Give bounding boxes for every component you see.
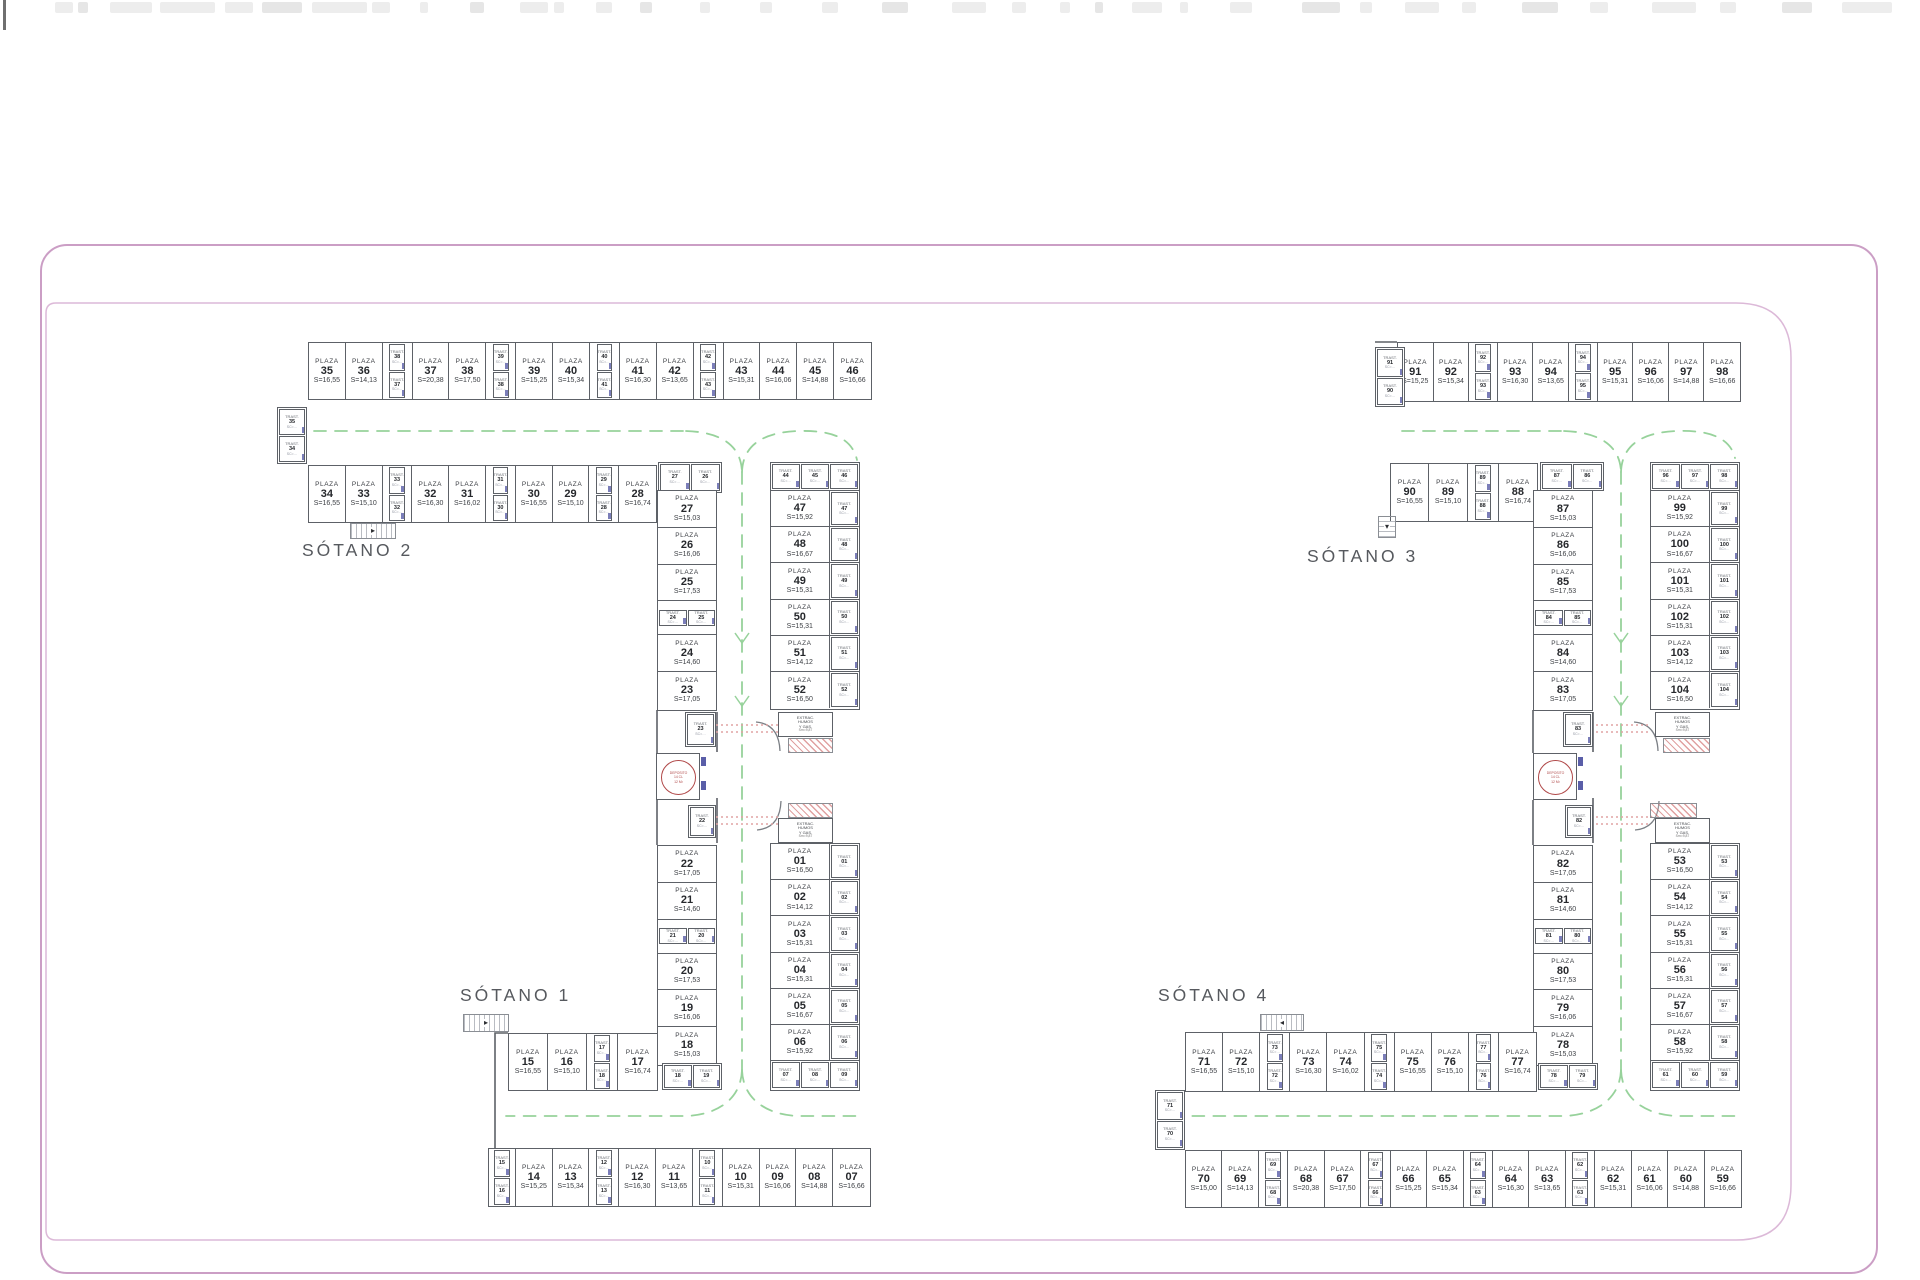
plaza-number: 73: [1302, 1056, 1314, 1068]
trast-area: SC=…: [497, 1195, 507, 1199]
plaza-number: 78: [1557, 1039, 1569, 1051]
east-row: PLAZA100S=16,67TRAST.100SC=…: [1651, 527, 1739, 563]
trast-18: TRAST.18SC=…: [664, 1065, 692, 1088]
plaza-word: PLAZA: [1551, 677, 1575, 684]
trast-area: SC=…: [1552, 480, 1562, 484]
trast-slot: TRAST.57SC=…: [1710, 989, 1739, 1024]
plaza-area: S=16,74: [624, 1068, 650, 1076]
trast-area: SC=…: [497, 1167, 507, 1171]
plaza-word: PLAZA: [1551, 850, 1575, 857]
trast-82: TRAST.82SC=…: [1567, 807, 1591, 836]
plaza-number: 55: [1674, 928, 1686, 940]
plaza-number: 92: [1445, 366, 1457, 378]
plaza-area: S=16,66: [1709, 378, 1735, 386]
plaza-94: PLAZA94S=13,65: [1533, 343, 1569, 401]
plaza-area: S=14,88: [1673, 378, 1699, 386]
plaza-60: PLAZA60S=14,88: [1668, 1151, 1704, 1207]
plaza-area: S=15,25: [521, 1183, 547, 1191]
plaza-area: S=16,74: [1504, 1068, 1530, 1076]
trast-area: SC=…: [1660, 1079, 1670, 1083]
trast-area: SC=…: [1719, 1046, 1729, 1050]
plaza-54: PLAZA54S=14,12: [1651, 880, 1710, 915]
plaza-number: 40: [565, 365, 577, 377]
plaza-19: PLAZA19S=16,06: [658, 990, 716, 1027]
trast-slot: TRAST.02SC=…: [830, 880, 859, 915]
plaza-72: PLAZA72S=15,10: [1223, 1033, 1260, 1091]
plaza-word: PLAZA: [1229, 1049, 1253, 1056]
trast-area: SC=…: [599, 511, 609, 515]
trast-area: SC=…: [696, 940, 706, 944]
trast-pair: TRAST.10SC=…TRAST.11SC=…: [693, 1149, 723, 1206]
entry-arrow-icon: ▸: [370, 527, 376, 535]
plaza-word: PLAZA: [352, 358, 376, 365]
entry-stairs: ▸: [350, 523, 396, 539]
trast-area: SC=…: [701, 1080, 711, 1084]
plaza-number: 56: [1674, 964, 1686, 976]
trast-pair: TRAST.64SC=…TRAST.63SC=…: [1464, 1151, 1494, 1207]
trast-area: SC=…: [1544, 621, 1554, 625]
plaza-area: S=15,10: [1437, 1068, 1463, 1076]
plaza-word: PLAZA: [1551, 640, 1575, 647]
trast-cap-row: TRAST.61SC=…TRAST.60SC=…TRAST.59SC=…: [1651, 1061, 1739, 1089]
plaza-area: S=15,31: [1667, 623, 1693, 631]
plaza-area: S=16,30: [1295, 1068, 1321, 1076]
trast-pair: TRAST.33SC=…TRAST.32SC=…: [383, 466, 413, 522]
plaza-34: PLAZA34S=16,55: [309, 466, 346, 522]
trast-91: TRAST.91SC=…: [1377, 349, 1403, 377]
trast-slot: TRAST.04SC=…: [830, 953, 859, 988]
trast-area: SC=…: [1477, 482, 1487, 486]
plaza-number: 59: [1717, 1173, 1729, 1185]
plaza-number: 48: [794, 538, 806, 550]
trast-area: SC=…: [1719, 694, 1729, 698]
plaza-word: PLAZA: [663, 358, 687, 365]
plaza-area: S=14,12: [787, 904, 813, 912]
trast-21: TRAST.21SC=…: [659, 928, 687, 944]
trast-101: TRAST.101SC=…: [1711, 564, 1738, 597]
plaza-21: PLAZA21S=14,60: [658, 883, 716, 920]
col-s2-spine-west: PLAZA27S=15,03PLAZA26S=16,06PLAZA25S=17,…: [657, 490, 717, 711]
trast-single: TRAST.83SC=…: [1563, 712, 1593, 747]
plaza-area: S=15,31: [787, 976, 813, 984]
trast-area: SC=…: [599, 1167, 609, 1171]
plaza-area: S=15,25: [1402, 378, 1428, 386]
plaza-word: PLAZA: [766, 358, 790, 365]
trast-area: SC=…: [839, 901, 849, 905]
trast-63: TRAST.63SC=…: [1470, 1180, 1486, 1207]
plaza-area: S=17,50: [1329, 1185, 1355, 1193]
trast-15: TRAST.15SC=…: [494, 1150, 510, 1177]
east-row: PLAZA56S=15,31TRAST.56SC=…: [1651, 953, 1739, 989]
plaza-98: PLAZA98S=16,66: [1704, 343, 1740, 401]
plaza-word: PLAZA: [1535, 1166, 1559, 1173]
trast-area: SC=…: [700, 481, 710, 485]
trast-96: TRAST.96SC=…: [1652, 464, 1680, 489]
trast-38: TRAST.38SC=…: [389, 344, 405, 371]
trast-pair: TRAST.92SC=…TRAST.93SC=…: [1469, 343, 1498, 401]
trast-area: SC=…: [1690, 1079, 1700, 1083]
plaza-61: PLAZA61S=16,06: [1632, 1151, 1668, 1207]
col-s4-spine-west: PLAZA82S=17,05PLAZA81S=14,60TRAST.81SC=……: [1533, 845, 1593, 1066]
trast-area: SC=…: [1165, 1138, 1175, 1142]
trast-52: TRAST.52SC=…: [831, 673, 858, 707]
plaza-64: PLAZA64S=16,30: [1493, 1151, 1529, 1207]
plaza-area: S=14,88: [801, 1183, 827, 1191]
entry-stairs: ◂: [1260, 1014, 1304, 1031]
trast-46: TRAST.46SC=…: [830, 464, 858, 489]
trast-38: TRAST.38SC=…: [493, 372, 509, 399]
plaza-area: S=14,60: [1550, 659, 1576, 667]
trast-slot: TRAST.55SC=…: [1710, 916, 1739, 951]
trast-17: TRAST.17SC=…: [594, 1035, 610, 1062]
trast-pair: TRAST.69SC=…TRAST.68SC=…: [1259, 1151, 1289, 1207]
plaza-number: 53: [1674, 855, 1686, 867]
trast-area: SC=…: [1719, 974, 1729, 978]
plaza-40: PLAZA40S=15,34: [553, 343, 590, 399]
extraction-room: EXTRAC.HUMOSY GAS.Sm=9,87: [1655, 712, 1710, 737]
plaza-07: PLAZA07S=16,66: [833, 1149, 870, 1206]
entry-arrow-icon: ◂: [1279, 1019, 1285, 1027]
plaza-number: 58: [1674, 1036, 1686, 1048]
trast-area: SC=…: [697, 825, 707, 829]
plaza-88: PLAZA88S=16,74: [1499, 464, 1537, 521]
plaza-area: S=16,55: [314, 377, 340, 385]
plaza-number: 47: [794, 502, 806, 514]
plaza-32: PLAZA32S=16,30: [412, 466, 449, 522]
plaza-area: S=16,06: [765, 377, 791, 385]
plaza-84: PLAZA84S=14,60: [1534, 635, 1592, 672]
plaza-number: 08: [808, 1171, 820, 1183]
plaza-number: 15: [522, 1056, 534, 1068]
trast-pair: TRAST.81SC=…TRAST.80SC=…: [1534, 920, 1592, 954]
trast-83: TRAST.83SC=…: [1565, 714, 1591, 745]
trast-22: TRAST.22SC=…: [690, 807, 714, 836]
trast-stack: TRAST.87SC=…TRAST.86SC=…: [1540, 462, 1604, 491]
trast-slot: TRAST.05SC=…: [830, 989, 859, 1024]
plaza-word: PLAZA: [788, 884, 812, 891]
plaza-number: 85: [1557, 576, 1569, 588]
plaza-96: PLAZA96S=16,06: [1633, 343, 1669, 401]
trast-47: TRAST.47SC=…: [831, 492, 858, 525]
plaza-77: PLAZA77S=16,74: [1499, 1033, 1536, 1091]
trast-74: TRAST.74SC=…: [1371, 1063, 1387, 1091]
extraction-room: EXTRAC.HUMOSY GAS.Sm=9,87: [1655, 818, 1710, 843]
trast-area: SC=…: [1719, 901, 1729, 905]
trast-87: TRAST.87SC=…: [1542, 464, 1572, 489]
trast-area: SC=…: [599, 484, 609, 488]
plaza-number: 30: [528, 488, 540, 500]
plaza-46: PLAZA46S=16,66: [834, 343, 871, 399]
plaza-number: 33: [358, 488, 370, 500]
trast-area: SC=…: [839, 1046, 849, 1050]
plaza-area: S=14,60: [1550, 906, 1576, 914]
plaza-103: PLAZA103S=14,12: [1651, 636, 1710, 671]
plaza-31: PLAZA31S=16,02: [449, 466, 486, 522]
trast-99: TRAST.99SC=…: [1711, 492, 1738, 525]
trast-area: SC=…: [1719, 657, 1729, 661]
plaza-number: 104: [1671, 684, 1689, 696]
sotano-3-label: SÓTANO 3: [1307, 546, 1418, 567]
plaza-area: S=15,34: [1432, 1185, 1458, 1193]
plaza-area: S=15,25: [521, 377, 547, 385]
plaza-word: PLAZA: [675, 995, 699, 1002]
plaza-number: 06: [794, 1036, 806, 1048]
plaza-number: 41: [632, 365, 644, 377]
plaza-word: PLAZA: [1228, 1166, 1252, 1173]
trast-area: SC=…: [1660, 480, 1670, 484]
plaza-word: PLAZA: [1668, 848, 1692, 855]
plaza-number: 91: [1409, 366, 1421, 378]
plaza-area: S=16,50: [1667, 696, 1693, 704]
plaza-number: 18: [681, 1039, 693, 1051]
stair-hatch: [788, 803, 833, 818]
plaza-100: PLAZA100S=16,67: [1651, 527, 1710, 562]
plaza-word: PLAZA: [1551, 569, 1575, 576]
plaza-word: PLAZA: [1506, 1049, 1530, 1056]
plaza-area: S=16,74: [624, 500, 650, 508]
plaza-area: S=14,12: [1667, 659, 1693, 667]
east-row: PLAZA54S=14,12TRAST.54SC=…: [1651, 880, 1739, 916]
plaza-number: 34: [321, 488, 333, 500]
plaza-102: PLAZA102S=15,31: [1651, 600, 1710, 635]
trast-area: SC=…: [780, 480, 790, 484]
plaza-number: 02: [794, 891, 806, 903]
plaza-word: PLAZA: [1601, 1166, 1625, 1173]
trast-35: TRAST.35SC=…: [279, 409, 305, 435]
trast-cap-row: TRAST.44SC=…TRAST.45SC=…TRAST.46SC=…: [771, 463, 859, 491]
plaza-word: PLAZA: [729, 1164, 753, 1171]
plaza-48: PLAZA48S=16,67: [771, 527, 830, 562]
trast-pair: TRAST.77SC=…TRAST.76SC=…: [1469, 1033, 1499, 1091]
trast-area: SC=…: [1473, 1196, 1483, 1200]
trast-62: TRAST.62SC=…: [1572, 1152, 1588, 1179]
plaza-word: PLAZA: [788, 1029, 812, 1036]
trast-area: SC=…: [1719, 512, 1729, 516]
plaza-word: PLAZA: [1668, 495, 1692, 502]
trast-area: SC=…: [1374, 1051, 1384, 1055]
plaza-word: PLAZA: [675, 640, 699, 647]
trast-90: TRAST.90SC=…: [1377, 378, 1403, 406]
trast-10: TRAST.10SC=…: [699, 1150, 715, 1177]
plaza-01: PLAZA01S=16,50: [771, 844, 830, 879]
plaza-number: 95: [1609, 366, 1621, 378]
plaza-area: S=16,50: [787, 867, 813, 875]
plaza-101: PLAZA101S=15,31: [1651, 563, 1710, 598]
plaza-70: PLAZA70S=15,00: [1186, 1151, 1222, 1207]
plaza-number: 25: [681, 576, 693, 588]
plaza-63: PLAZA63S=13,65: [1529, 1151, 1565, 1207]
trast-area: SC=…: [287, 453, 297, 457]
trast-79: TRAST.79SC=…: [1569, 1065, 1597, 1088]
plaza-word: PLAZA: [788, 604, 812, 611]
plaza-number: 26: [681, 539, 693, 551]
plaza-word: PLAZA: [662, 1164, 686, 1171]
east-row: PLAZA55S=15,31TRAST.55SC=…: [1651, 916, 1739, 952]
east-row: PLAZA03S=15,31TRAST.03SC=…: [771, 916, 859, 952]
trast-05: TRAST.05SC=…: [831, 990, 858, 1023]
plaza-number: 38: [461, 365, 473, 377]
trast-103: TRAST.103SC=…: [1711, 637, 1738, 670]
plaza-word: PLAZA: [1551, 1032, 1575, 1039]
plaza-word: PLAZA: [1668, 677, 1692, 684]
trast-37: TRAST.37SC=…: [389, 372, 405, 399]
plaza-15: PLAZA15S=16,55: [509, 1034, 548, 1090]
trast-slot: TRAST.01SC=…: [830, 844, 859, 879]
plaza-word: PLAZA: [1638, 1166, 1662, 1173]
trast-area: SC=…: [1719, 585, 1729, 589]
col-s2-spine-east: TRAST.44SC=…TRAST.45SC=…TRAST.46SC=…PLAZ…: [770, 462, 860, 710]
trast-86: TRAST.86SC=…: [1573, 464, 1603, 489]
plaza-43: PLAZA43S=15,31: [724, 343, 761, 399]
plaza-area: S=15,25: [1395, 1185, 1421, 1193]
plaza-area: S=17,05: [1550, 870, 1576, 878]
plaza-number: 13: [564, 1171, 576, 1183]
plaza-word: PLAZA: [675, 887, 699, 894]
plaza-area: S=15,34: [557, 1183, 583, 1191]
trast-94: TRAST.94SC=…: [1575, 344, 1591, 372]
trast-area: SC=…: [392, 484, 402, 488]
floor-plan-image: PLAZA35S=16,55PLAZA36S=14,13TRAST.38SC=……: [0, 0, 1920, 1280]
plaza-18: PLAZA18S=15,03: [658, 1027, 716, 1064]
trast-area: SC=…: [673, 1080, 683, 1084]
plaza-area: S=13,65: [1538, 378, 1564, 386]
row-s4-upper: PLAZA71S=16,55PLAZA72S=15,10TRAST.73SC=……: [1185, 1032, 1537, 1092]
plaza-number: 24: [681, 647, 693, 659]
trast-02: TRAST.02SC=…: [831, 881, 858, 914]
trast-area: SC=…: [696, 621, 706, 625]
trast-27: TRAST.27SC=…: [660, 464, 690, 491]
trast-07: TRAST.07SC=…: [772, 1062, 800, 1088]
plaza-area: S=14,60: [674, 906, 700, 914]
trast-area: SC=…: [780, 1079, 790, 1083]
plaza-word: PLAZA: [1294, 1166, 1318, 1173]
trast-85: TRAST.85SC=…: [1564, 610, 1592, 626]
plaza-28: PLAZA28S=16,74: [619, 466, 656, 522]
plaza-number: 37: [424, 365, 436, 377]
trast-area: SC=…: [1578, 390, 1588, 394]
trast-area: SC=…: [1690, 480, 1700, 484]
trast-pair: TRAST.39SC=…TRAST.38SC=…: [486, 343, 516, 399]
trast-78: TRAST.78SC=…: [1540, 1065, 1568, 1088]
col-s4-spine-east: PLAZA53S=16,50TRAST.53SC=…PLAZA54S=14,12…: [1650, 843, 1740, 1091]
trast-slot: TRAST.52SC=…: [830, 672, 859, 708]
plaza-number: 27: [681, 503, 693, 515]
plaza-23: PLAZA23S=17,05: [658, 672, 716, 709]
plaza-word: PLAZA: [1439, 359, 1463, 366]
trast-pair: TRAST.31SC=…TRAST.30SC=…: [486, 466, 516, 522]
trast-area: SC=…: [1270, 1051, 1280, 1055]
plaza-22: PLAZA22S=17,05: [658, 846, 716, 883]
trast-area: SC=…: [839, 548, 849, 552]
trast-88: TRAST.88SC=…: [1475, 493, 1491, 520]
plaza-area: S=16,30: [1502, 378, 1528, 386]
plaza-number: 83: [1557, 684, 1569, 696]
row-s2-second: PLAZA34S=16,55PLAZA33S=15,10TRAST.33SC=……: [308, 465, 657, 523]
trast-48: TRAST.48SC=…: [831, 528, 858, 561]
trast-area: SC=…: [1478, 361, 1488, 365]
extraction-text: Sm=9,87: [1676, 835, 1690, 839]
plaza-word: PLAZA: [1433, 1166, 1457, 1173]
trast-98: TRAST.98SC=…: [1710, 464, 1738, 489]
trast-80: TRAST.80SC=…: [1564, 928, 1592, 944]
plaza-number: 74: [1339, 1056, 1351, 1068]
plaza-number: 94: [1545, 366, 1557, 378]
trast-area: SC=…: [597, 1052, 607, 1056]
trast-area: SC=…: [1573, 733, 1583, 737]
trast-16: TRAST.16SC=…: [494, 1178, 510, 1205]
trast-area: SC=…: [1268, 1196, 1278, 1200]
trast-area: SC=…: [495, 484, 505, 488]
plaza-08: PLAZA08S=14,88: [796, 1149, 833, 1206]
plaza-number: 61: [1643, 1173, 1655, 1185]
plaza-76: PLAZA76S=15,10: [1432, 1033, 1469, 1091]
plaza-area: S=16,02: [454, 500, 480, 508]
col-s3-spine-east: TRAST.96SC=…TRAST.97SC=…TRAST.98SC=…PLAZ…: [1650, 462, 1740, 710]
trast-stack: TRAST.71SC=…TRAST.70SC=…: [1155, 1090, 1185, 1150]
trast-area: SC=…: [599, 388, 609, 392]
trast-66: TRAST.66SC=…: [1368, 1180, 1384, 1207]
trast-63: TRAST.63SC=…: [1572, 1180, 1588, 1207]
trast-area: SC=…: [839, 694, 849, 698]
plaza-area: S=15,31: [787, 623, 813, 631]
plaza-word: PLAZA: [1668, 884, 1692, 891]
trast-area: SC=…: [702, 1195, 712, 1199]
trast-08: TRAST.08SC=…: [801, 1062, 829, 1088]
trast-area: SC=…: [1370, 1196, 1380, 1200]
extraction-text: Sm=9,87: [799, 835, 813, 839]
plaza-area: S=16,06: [674, 551, 700, 559]
plaza-area: S=17,53: [1550, 588, 1576, 596]
plaza-number: 84: [1557, 647, 1569, 659]
plaza-area: S=15,10: [351, 500, 377, 508]
plaza-area: S=16,55: [521, 500, 547, 508]
plaza-word: PLAZA: [802, 1164, 826, 1171]
plaza-97: PLAZA97S=14,88: [1669, 343, 1705, 401]
trast-76: TRAST.76SC=…: [1476, 1063, 1492, 1091]
plaza-number: 52: [794, 684, 806, 696]
trast-area: SC=…: [1572, 940, 1582, 944]
plaza-area: S=16,74: [1505, 498, 1531, 506]
trast-13: TRAST.13SC=…: [596, 1178, 612, 1205]
plaza-word: PLAZA: [419, 358, 443, 365]
trast-area: SC=…: [839, 480, 849, 484]
plaza-word: PLAZA: [1438, 1049, 1462, 1056]
trast-pair: TRAST.67SC=…TRAST.66SC=…: [1361, 1151, 1391, 1207]
plaza-02: PLAZA02S=14,12: [771, 880, 830, 915]
trast-area: SC=…: [495, 511, 505, 515]
plaza-word: PLAZA: [788, 957, 812, 964]
deposit-room: DEPOSITO14 CL12 M²: [656, 753, 700, 800]
east-row: PLAZA52S=16,50TRAST.52SC=…: [771, 672, 859, 708]
trast-area: SC=…: [1478, 1080, 1488, 1084]
plaza-area: S=16,06: [1550, 1014, 1576, 1022]
trast-33: TRAST.33SC=…: [389, 467, 405, 494]
trast-92: TRAST.92SC=…: [1475, 344, 1491, 372]
plaza-number: 42: [669, 365, 681, 377]
trast-67: TRAST.67SC=…: [1368, 1152, 1384, 1179]
plaza-number: 66: [1402, 1173, 1414, 1185]
plaza-number: 80: [1557, 965, 1569, 977]
plaza-word: PLAZA: [1436, 479, 1460, 486]
plaza-area: S=15,10: [1435, 498, 1461, 506]
trast-12: TRAST.12SC=…: [596, 1150, 612, 1177]
trast-45: TRAST.45SC=…: [801, 464, 829, 489]
plaza-30: PLAZA30S=16,55: [516, 466, 553, 522]
plaza-73: PLAZA73S=16,30: [1290, 1033, 1327, 1091]
east-row: PLAZA101S=15,31TRAST.101SC=…: [1651, 563, 1739, 599]
plaza-area: S=15,03: [1550, 1051, 1576, 1059]
plaza-number: 51: [794, 647, 806, 659]
